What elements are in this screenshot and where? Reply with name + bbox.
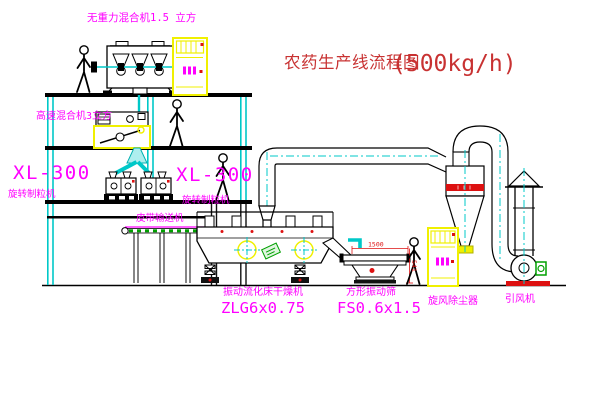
belt-conveyor bbox=[122, 227, 207, 234]
drawing-title-capacity: (500kg/h) bbox=[392, 51, 517, 77]
label-dryer-model: ZLG6x0.75 bbox=[221, 299, 305, 317]
fluid-bed-dryer bbox=[197, 212, 360, 283]
label-dryer-name: 振动流化床干燥机 bbox=[223, 285, 303, 298]
label-sieve-name: 方形振动筛 bbox=[346, 285, 396, 298]
label-granulator-right-model: XL-300 bbox=[176, 164, 254, 186]
cabinet-display-marks bbox=[436, 258, 449, 266]
label-granulator-right-name: 旋转制粒机 bbox=[182, 194, 230, 206]
label-gravity-free-mixer: 无重力混合机1.5 立方 bbox=[87, 11, 196, 24]
dim-sieve-height: 541 bbox=[410, 260, 418, 272]
induced-draft-fan bbox=[506, 255, 550, 286]
label-belt-conveyor: 皮带输送机 bbox=[136, 212, 184, 224]
control-cabinet-top bbox=[173, 38, 207, 95]
square-sieve bbox=[340, 246, 414, 284]
dim-sieve-length: 1500 bbox=[368, 241, 384, 249]
label-sieve-model: FS0.6x1.5 bbox=[337, 299, 421, 317]
label-fan: 引风机 bbox=[505, 292, 535, 305]
label-cyclone: 旋风除尘器 bbox=[428, 294, 478, 307]
cad-drawing-canvas: 农药生产线流程图 (500kg/h) 无重力混合机1.5 立方 高速混合机3立方… bbox=[0, 0, 600, 403]
label-high-speed-mixer: 高速混合机3立方 bbox=[36, 109, 112, 122]
granulator-right bbox=[139, 172, 173, 201]
granulator-left bbox=[104, 172, 138, 201]
person-figure bbox=[77, 46, 90, 92]
person-figure bbox=[170, 100, 183, 146]
control-cabinet-bottom bbox=[428, 228, 458, 286]
exhaust-duct bbox=[259, 148, 446, 227]
label-granulator-left-name: 旋转制粒机 bbox=[8, 188, 56, 200]
cabinet-display-marks bbox=[183, 67, 196, 75]
label-granulator-left-model: XL-300 bbox=[13, 162, 91, 184]
